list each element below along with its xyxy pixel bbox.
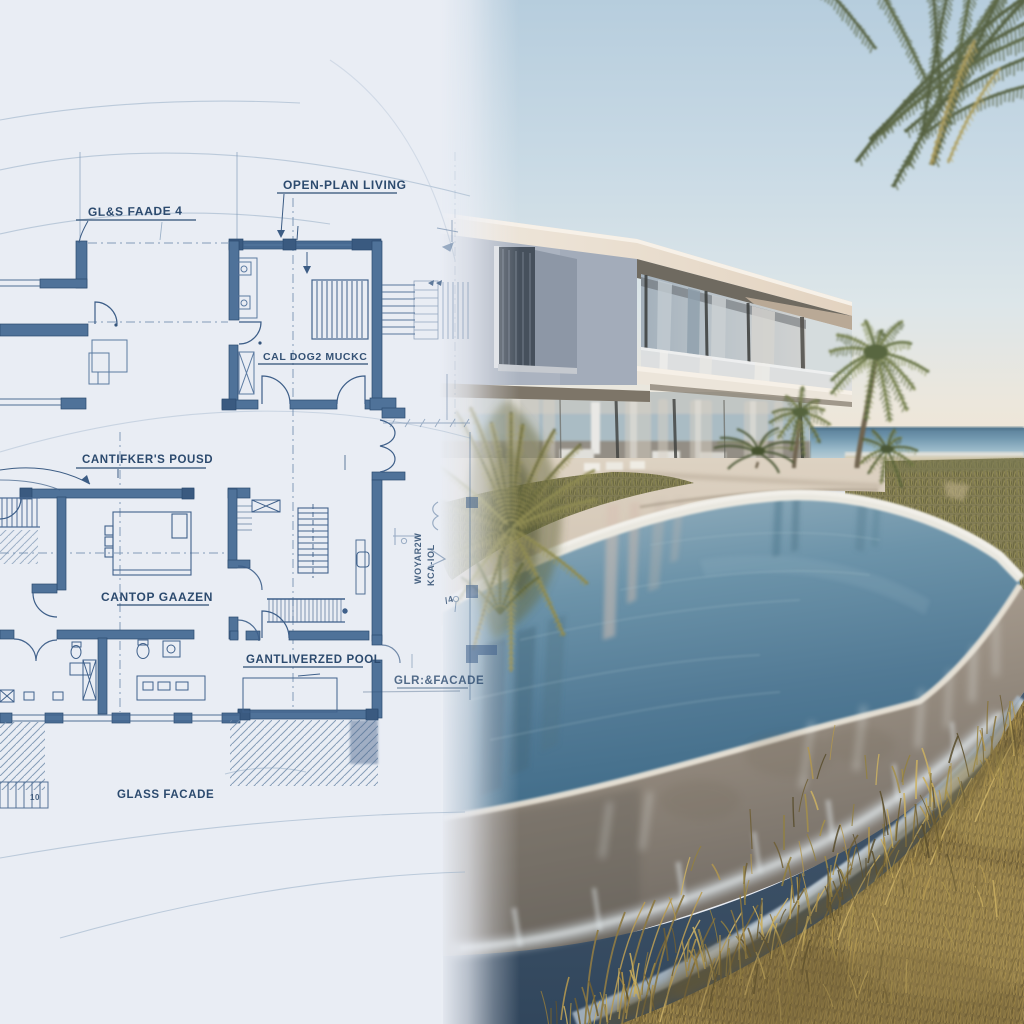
svg-text:GANTLIVERZED POOL: GANTLIVERZED POOL [246, 654, 381, 666]
svg-text:WOYAR2W: WOYAR2W [413, 533, 423, 584]
svg-text:CANTIFKER'S POUSD: CANTIFKER'S POUSD [82, 454, 213, 466]
svg-text:OPEN-PLAN LIVING: OPEN-PLAN LIVING [283, 178, 407, 192]
svg-text:GLR:&FACADE: GLR:&FACADE [394, 675, 484, 687]
svg-text:10: 10 [30, 793, 40, 802]
svg-text:CANTOP GAAZEN: CANTOP GAAZEN [101, 590, 213, 604]
svg-text:CAL DOG2 MUCKC: CAL DOG2 MUCKC [263, 351, 367, 363]
svg-text:GL&S FAADE 4: GL&S FAADE 4 [88, 204, 183, 219]
svg-text:GLASS FACADE: GLASS FACADE [117, 789, 214, 801]
svg-text:KCA-IOL: KCA-IOL [426, 544, 436, 586]
